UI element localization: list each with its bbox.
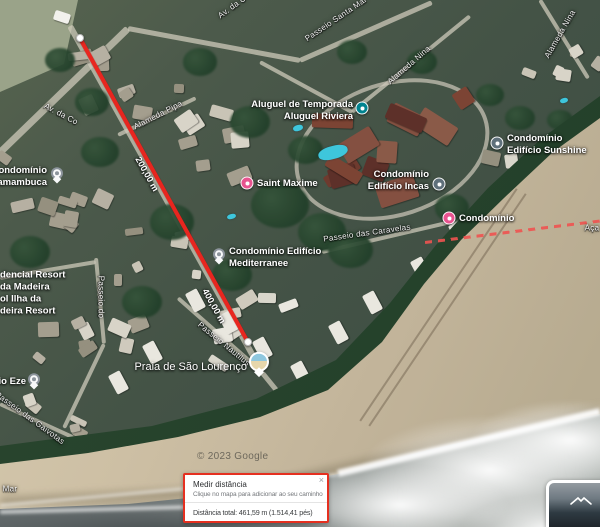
icon-dot xyxy=(437,182,441,186)
icon-dot xyxy=(245,181,249,185)
dialog-hint: Clique no mapa para adicionar ao seu cam… xyxy=(193,491,323,498)
poi-pin-icon xyxy=(28,373,40,389)
dialog-divider xyxy=(185,502,327,503)
imagery-thumbnail[interactable] xyxy=(546,480,600,527)
lodging-icon xyxy=(443,212,456,225)
place-labels-layer: CondomínioItamambucaAluguel de Temporada… xyxy=(0,0,600,527)
map-attribution: © 2023 Google xyxy=(197,451,268,462)
place-label-text: nio Eze xyxy=(0,376,26,388)
close-icon[interactable]: × xyxy=(319,476,324,485)
measure-distance-dialog: Medir distância Clique no mapa para adic… xyxy=(183,473,329,523)
place-label-text: CondomínioItamambuca xyxy=(0,165,47,189)
lodging-icon xyxy=(356,102,369,115)
place-label-text: Praia de São Lourenço xyxy=(134,360,247,374)
place-label-text: Saint Maxime xyxy=(257,178,318,190)
place-label-text: Condomínio xyxy=(459,213,514,225)
icon-dot xyxy=(447,216,451,220)
place-label-text: dencial Resortda Madeiraol Ilha dadeira … xyxy=(0,270,65,319)
bird-icon xyxy=(567,495,595,509)
icon-dot xyxy=(495,141,499,145)
lodging-icon xyxy=(433,178,446,191)
icon-dot xyxy=(360,106,364,110)
total-distance-value: Distância total: 461,59 m (1.514,41 pés) xyxy=(193,508,312,517)
map-canvas[interactable]: 200,00 m400,00 m Av. da UPasseio Santa M… xyxy=(0,0,600,527)
poi-pin-icon xyxy=(213,248,225,264)
place-label-text: Aluguel de TemporadaAluguel Riviera xyxy=(251,99,353,123)
place-label-text: CondomínioEdifício Incas xyxy=(368,169,429,193)
dialog-title: Medir distância xyxy=(193,480,247,489)
poi-pin-icon xyxy=(51,167,63,183)
place-label-text: CondomínioEdifício Sunshine xyxy=(507,133,587,157)
beach-photo-pin-icon xyxy=(249,352,269,378)
place-label-text: Condomínio EdifícioMediterranee xyxy=(229,246,321,270)
lodging-icon xyxy=(491,137,504,150)
lodging-icon xyxy=(241,177,254,190)
